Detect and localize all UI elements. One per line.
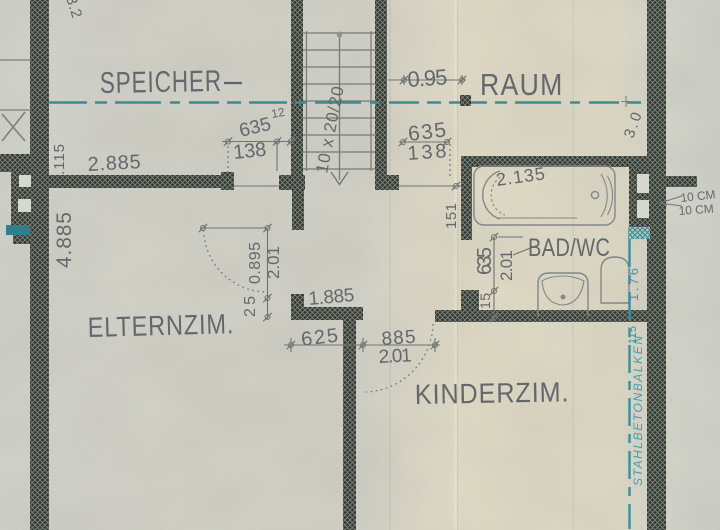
svg-text:.115: .115: [51, 144, 68, 175]
svg-text:138: 138: [232, 139, 267, 164]
svg-text:15: 15: [477, 293, 493, 309]
svg-text:0.895: 0.895: [247, 242, 264, 284]
svg-text:BAD/WC: BAD/WC: [528, 234, 610, 262]
svg-text:4.885: 4.885: [53, 212, 76, 268]
svg-text:2.01: 2.01: [378, 345, 412, 368]
svg-text:0.95: 0.95: [407, 64, 449, 92]
svg-text:ELTERNZIM.: ELTERNZIM.: [87, 309, 234, 343]
svg-text:1.76: 1.76: [626, 268, 641, 301]
svg-text:12: 12: [270, 105, 286, 121]
svg-text:2.01: 2.01: [497, 250, 516, 281]
svg-text:151: 151: [443, 203, 460, 229]
svg-text:SPEICHER: SPEICHER: [100, 64, 223, 100]
svg-text:2.885: 2.885: [87, 151, 141, 176]
svg-text:635: 635: [474, 247, 496, 275]
svg-text:1.885: 1.885: [308, 285, 356, 310]
svg-text:115: 115: [627, 326, 639, 344]
svg-text:STAHLBETONBALKEN: STAHLBETONBALKEN: [631, 336, 645, 486]
svg-text:625: 625: [300, 325, 339, 351]
svg-text:KINDERZIM.: KINDERZIM.: [415, 376, 570, 410]
svg-text:2.01: 2.01: [264, 246, 283, 279]
svg-text:10 CM: 10 CM: [678, 202, 714, 218]
svg-text:138: 138: [407, 140, 447, 165]
svg-text:RAUM: RAUM: [480, 68, 564, 102]
